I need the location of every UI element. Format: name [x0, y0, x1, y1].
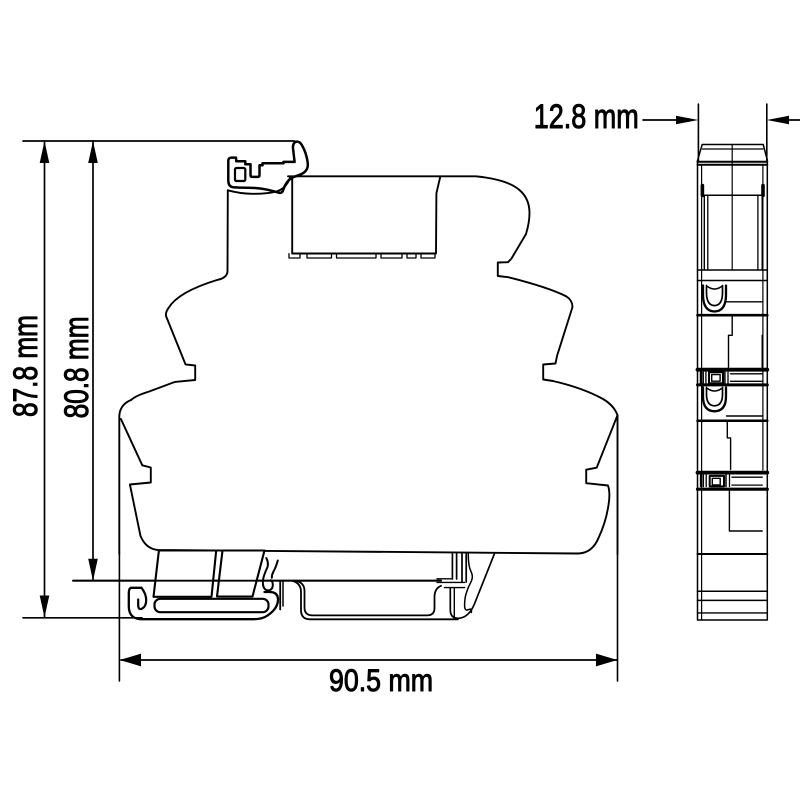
- svg-text:87.8 mm: 87.8 mm: [7, 315, 45, 417]
- svg-text:80.8 mm: 80.8 mm: [58, 316, 96, 418]
- svg-text:12.8 mm: 12.8 mm: [534, 98, 639, 136]
- svg-text:90.5 mm: 90.5 mm: [329, 662, 433, 698]
